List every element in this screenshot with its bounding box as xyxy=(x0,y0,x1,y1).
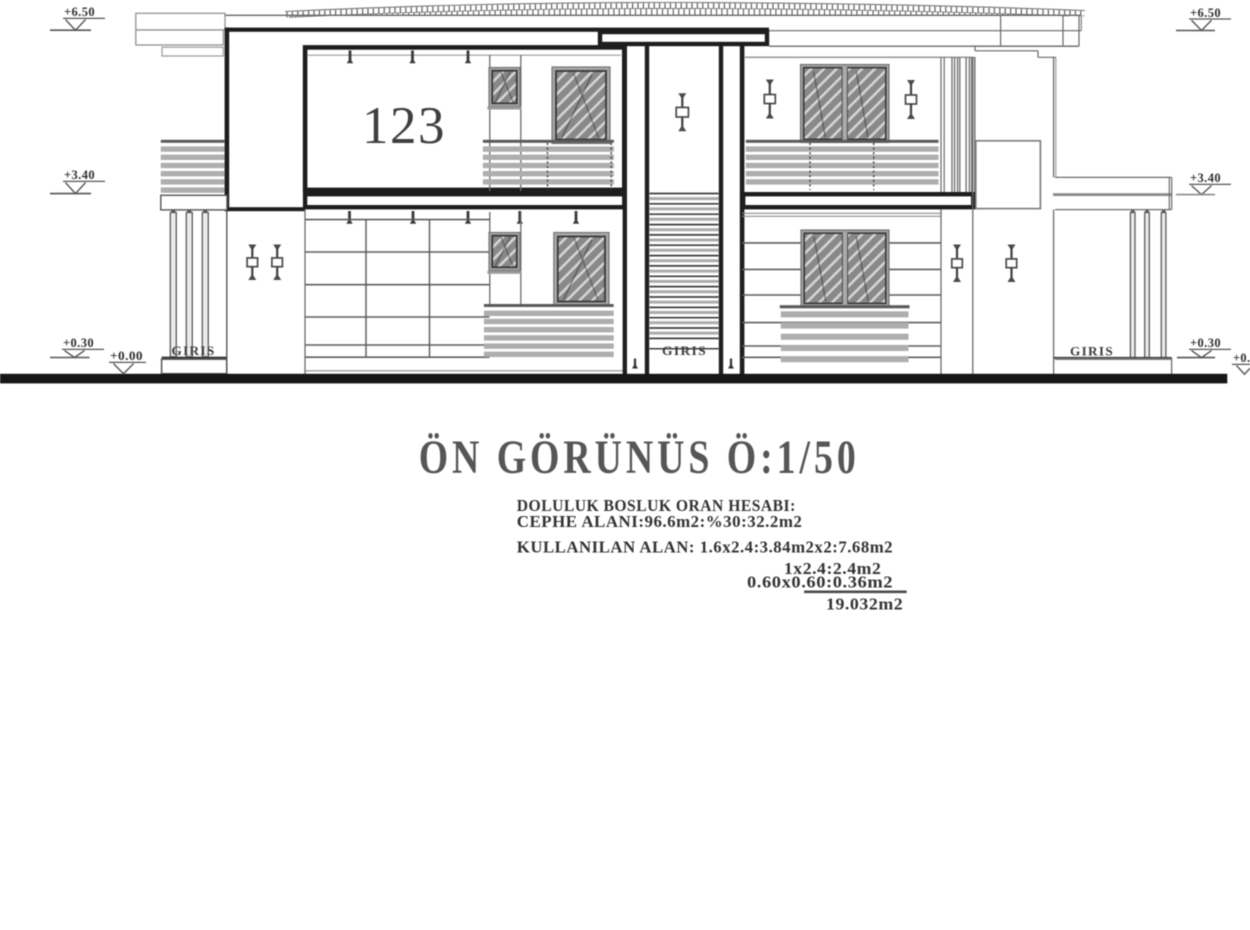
svg-text:GIRIS: GIRIS xyxy=(172,344,216,358)
svg-text:123: 123 xyxy=(362,97,446,155)
svg-text:GIRIS: GIRIS xyxy=(662,344,707,358)
svg-text:GIRIS: GIRIS xyxy=(1070,345,1114,359)
svg-text:CEPHE ALANI:96.6m2:%30:32.2m2: CEPHE ALANI:96.6m2:%30:32.2m2 xyxy=(517,512,803,531)
svg-text:+6.50: +6.50 xyxy=(64,5,95,19)
svg-text:+0.00: +0.00 xyxy=(110,349,143,363)
svg-text:+0.30: +0.30 xyxy=(1190,336,1221,350)
svg-text:ÖN GÖRÜNÜS Ö:1/50: ÖN GÖRÜNÜS Ö:1/50 xyxy=(419,431,860,484)
svg-text:KULLANILAN ALAN: 1.6x2.4:3.84: KULLANILAN ALAN: 1.6x2.4:3.84m2x2:7.68m2 xyxy=(517,537,893,556)
svg-text:+0.0: +0.0 xyxy=(1233,351,1250,365)
svg-text:+6.50: +6.50 xyxy=(1190,6,1221,20)
svg-text:19.032m2: 19.032m2 xyxy=(826,594,903,613)
svg-text:+3.40: +3.40 xyxy=(64,168,95,182)
svg-text:+0.30: +0.30 xyxy=(63,336,94,350)
svg-text:0.60x0.60:0.36m2: 0.60x0.60:0.36m2 xyxy=(747,573,893,592)
svg-text:+3.40: +3.40 xyxy=(1190,171,1221,185)
